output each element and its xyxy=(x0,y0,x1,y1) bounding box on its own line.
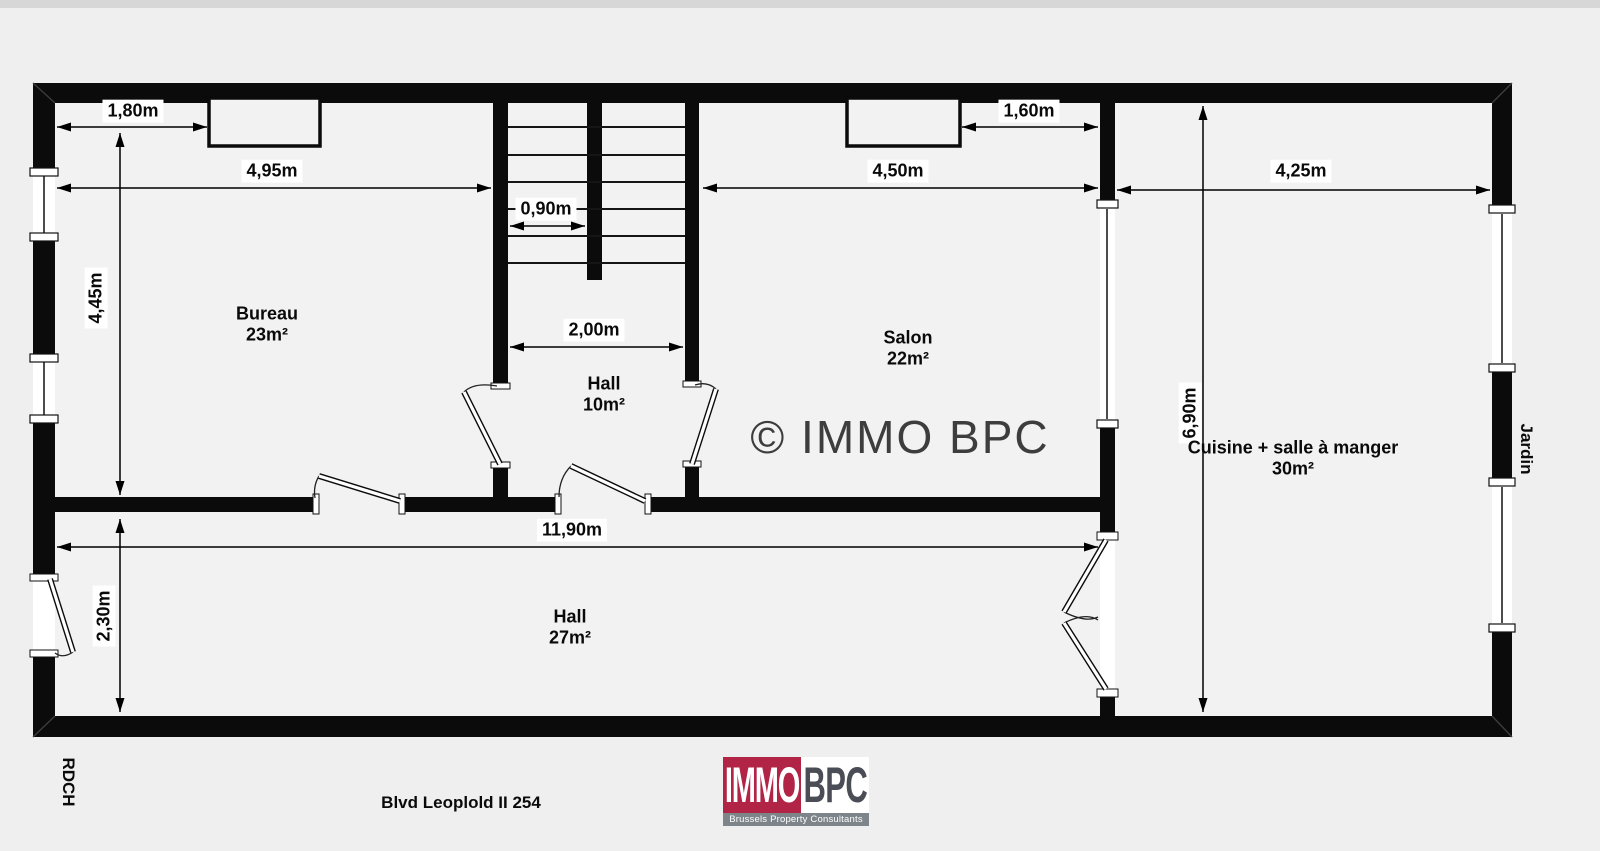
room-area: 23m² xyxy=(236,324,298,345)
dim-bureau-width: 4,95m xyxy=(241,160,302,183)
address-label: Blvd Leoplold II 254 xyxy=(381,793,541,813)
room-name: Salon xyxy=(883,327,932,347)
dim-stair-width: 0,90m xyxy=(515,198,576,221)
dim-bureau-window-offset: 1,80m xyxy=(102,100,163,123)
room-label-cuisine: Cuisine + salle à manger 30m² xyxy=(1188,437,1399,478)
dim-hall-depth: 2,30m xyxy=(93,585,116,646)
logo-tagline: Brussels Property Consultants xyxy=(729,814,863,825)
dim-kitchen-depth: 6,90m xyxy=(1179,382,1202,443)
room-label-salon: Salon 22m² xyxy=(883,327,932,368)
agency-logo: IMMO BPC Brussels Property Consultants xyxy=(723,757,869,826)
dim-salon-window-offset: 1,60m xyxy=(998,100,1059,123)
floor-label: RDCH xyxy=(58,757,78,806)
watermark: © IMMO BPC xyxy=(750,410,1049,464)
logo-tagline-band: Brussels Property Consultants xyxy=(723,813,869,826)
dim-bureau-depth: 4,45m xyxy=(85,267,108,328)
logo-bpc-text: BPC xyxy=(803,757,867,813)
logo-bpc-box: BPC xyxy=(801,757,869,813)
window-left-2 xyxy=(30,354,58,423)
salon-recess xyxy=(847,98,960,146)
dim-salon-width: 4,50m xyxy=(867,160,928,183)
logo-immo-box: IMMO xyxy=(723,757,801,813)
garden-label: Jardin xyxy=(1516,423,1536,474)
window-left-1 xyxy=(30,168,58,241)
room-label-hall10: Hall 10m² xyxy=(583,373,625,414)
room-name: Hall xyxy=(553,606,586,626)
logo-immo-text: IMMO xyxy=(725,757,799,813)
window-salon-kitchen xyxy=(1097,200,1118,428)
room-label-bureau: Bureau 23m² xyxy=(236,303,298,344)
dim-hall-width: 2,00m xyxy=(563,319,624,342)
room-area: 10m² xyxy=(583,394,625,415)
window-right-2 xyxy=(1489,478,1515,632)
room-area: 30m² xyxy=(1188,458,1399,479)
dim-corridor-length: 11,90m xyxy=(537,519,607,542)
room-area: 27m² xyxy=(549,627,591,648)
room-area: 22m² xyxy=(883,348,932,369)
floorplan-page: 1,80m 4,95m 0,90m 2,00m 4,50m 1,60m 4,25… xyxy=(0,0,1600,851)
dim-kitchen-width: 4,25m xyxy=(1270,160,1331,183)
room-name: Bureau xyxy=(236,303,298,323)
bureau-recess xyxy=(209,98,320,146)
room-label-hall27: Hall 27m² xyxy=(549,606,591,647)
room-name: Cuisine + salle à manger xyxy=(1188,437,1399,457)
window-right-1 xyxy=(1489,205,1515,372)
room-name: Hall xyxy=(587,373,620,393)
